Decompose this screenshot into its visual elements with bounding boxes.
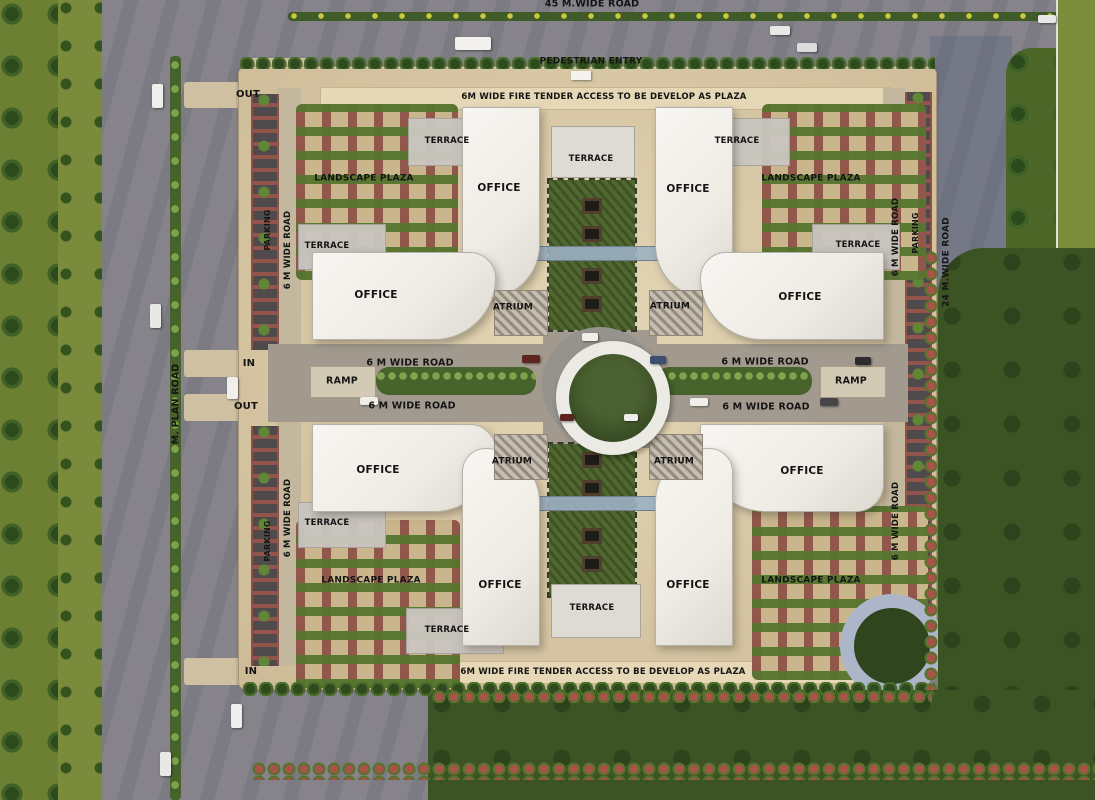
planter xyxy=(582,556,602,572)
label-terrace-center-top: TERRACE xyxy=(569,155,614,164)
label-ramp-left: RAMP xyxy=(326,376,358,386)
planter xyxy=(582,452,602,468)
grass-strip-left-verge xyxy=(58,0,102,800)
label-m-plan-road: M. PLAN ROAD xyxy=(171,364,181,445)
grass-strip-left-outer xyxy=(0,0,58,800)
car xyxy=(160,752,171,776)
planter xyxy=(582,226,602,242)
car xyxy=(152,84,163,108)
top-road-median xyxy=(288,12,1095,21)
label-terrace-tl-left: TERRACE xyxy=(305,242,350,251)
driveway-in-mid xyxy=(184,350,244,377)
label-landscape-plaza-bl: LANDSCAPE PLAZA xyxy=(321,577,420,586)
planter xyxy=(582,480,602,496)
label-office-br-horizontal: OFFICE xyxy=(780,466,823,477)
lawn-bottom-field xyxy=(428,690,1095,800)
label-out-top: OUT xyxy=(236,90,260,100)
label-parking-right: PARKING xyxy=(912,212,920,253)
label-landscape-plaza-tl: LANDSCAPE PLAZA xyxy=(314,175,413,184)
label-office-bl-vertical: OFFICE xyxy=(478,580,521,591)
planter xyxy=(582,268,602,284)
label-terrace-tl-upper: TERRACE xyxy=(425,137,470,146)
label-6m-road-left-top: 6 M WIDE ROAD xyxy=(284,211,293,289)
terrace-center-top xyxy=(551,126,635,178)
label-6m-road-center-right-lower: 6 M WIDE ROAD xyxy=(722,402,809,412)
car xyxy=(1038,15,1056,23)
car xyxy=(522,355,540,363)
label-terrace-tr-upper: TERRACE xyxy=(715,137,760,146)
planter xyxy=(582,528,602,544)
label-atrium-tr: ATRIUM xyxy=(650,303,690,312)
car xyxy=(560,414,574,421)
car xyxy=(855,357,871,365)
label-6m-road-left-bottom: 6 M WIDE ROAD xyxy=(284,479,293,557)
car xyxy=(650,356,666,364)
label-6m-road-right-bottom: 6 M WIDE ROAD xyxy=(892,482,901,560)
label-45m-wide-road: 45 M.WIDE ROAD xyxy=(545,0,639,9)
label-terrace-tr-right: TERRACE xyxy=(836,241,881,250)
label-office-tl-vertical: OFFICE xyxy=(477,183,520,194)
car xyxy=(624,414,638,421)
pedestrian-entry-marker xyxy=(571,71,591,80)
sky-bridge-top xyxy=(528,246,674,261)
label-parking-left-bottom: PARKING xyxy=(264,520,272,561)
label-landscape-plaza-tr: LANDSCAPE PLAZA xyxy=(761,175,860,184)
label-atrium-tl: ATRIUM xyxy=(493,304,533,313)
label-pedestrian-entry: PEDESTRIAN ENTRY xyxy=(540,58,643,67)
car xyxy=(150,304,161,328)
label-ramp-right: RAMP xyxy=(835,376,867,386)
driveway-in-bottom xyxy=(184,658,244,685)
label-office-br-vertical: OFFICE xyxy=(666,580,709,591)
label-landscape-plaza-br: LANDSCAPE PLAZA xyxy=(761,577,860,586)
car xyxy=(582,333,598,341)
label-terrace-bl-lower: TERRACE xyxy=(425,626,470,635)
label-6m-road-center-left-upper: 6 M WIDE ROAD xyxy=(366,358,453,368)
car xyxy=(231,704,242,728)
label-atrium-bl: ATRIUM xyxy=(492,458,532,467)
site-plan-canvas: 45 M.WIDE ROADPEDESTRIAN ENTRYOUT6M WIDE… xyxy=(0,0,1095,800)
atrium-tl xyxy=(494,290,548,336)
label-fire-access-bottom: 6M WIDE FIRE TENDER ACCESS TO BE DEVELOP… xyxy=(460,668,745,677)
label-fire-access-top: 6M WIDE FIRE TENDER ACCESS TO BE DEVELOP… xyxy=(461,93,746,102)
label-out-mid: OUT xyxy=(234,402,258,412)
label-6m-road-right-top: 6 M WIDE ROAD xyxy=(892,198,901,276)
office-building-tl-horizontal xyxy=(312,252,496,340)
car xyxy=(797,43,817,52)
label-terrace-bl-left: TERRACE xyxy=(305,519,350,528)
atrium-tr xyxy=(649,290,703,336)
hedge-row-lawn-top xyxy=(432,690,932,703)
planter xyxy=(582,198,602,214)
label-in-bottom: IN xyxy=(245,667,258,677)
center-median-right xyxy=(656,367,812,395)
planter xyxy=(582,296,602,312)
center-median-left xyxy=(376,367,536,395)
label-atrium-br: ATRIUM xyxy=(654,458,694,467)
label-office-tl-horizontal: OFFICE xyxy=(354,290,397,301)
label-24m-wide-road: 24 M.WIDE ROAD xyxy=(943,217,952,307)
car xyxy=(820,398,838,406)
car xyxy=(227,377,238,399)
label-terrace-center-bottom: TERRACE xyxy=(570,604,615,613)
car xyxy=(770,26,790,35)
label-6m-road-center-right-upper: 6 M WIDE ROAD xyxy=(721,357,808,367)
label-office-tr-horizontal: OFFICE xyxy=(778,292,821,303)
sky-bridge-bottom xyxy=(528,496,674,511)
label-office-tr-vertical: OFFICE xyxy=(666,184,709,195)
label-parking-left-top: PARKING xyxy=(264,209,272,250)
label-office-bl-horizontal: OFFICE xyxy=(356,465,399,476)
truck xyxy=(455,37,491,50)
label-in-mid: IN xyxy=(243,359,256,369)
hedge-row-bottom xyxy=(252,762,1095,780)
hedge-row-right-edge xyxy=(924,250,938,690)
label-6m-road-center-left-lower: 6 M WIDE ROAD xyxy=(368,401,455,411)
car xyxy=(690,398,708,406)
